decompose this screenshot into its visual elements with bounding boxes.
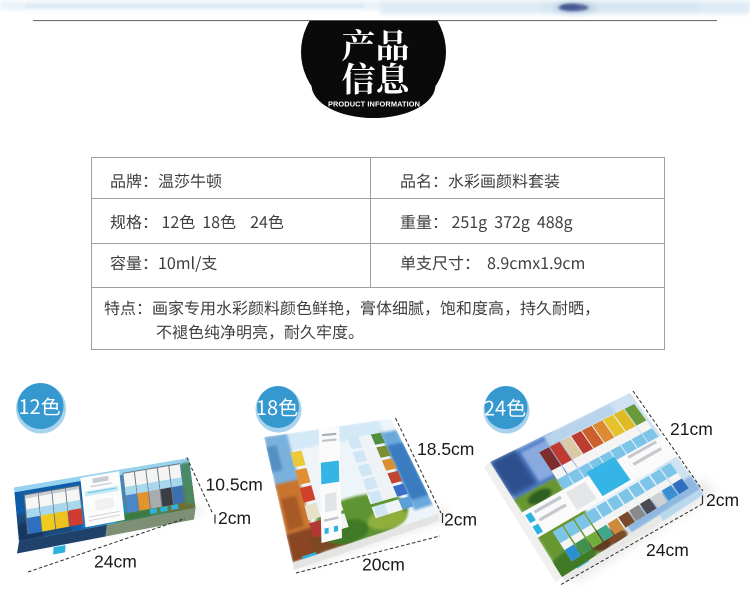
svg-text:10.5cm: 10.5cm [206,475,263,495]
svg-text:18.5cm: 18.5cm [417,439,474,459]
svg-text:20cm: 20cm [362,555,405,575]
svg-text:2cm: 2cm [218,508,251,528]
svg-text:2cm: 2cm [706,490,739,510]
svg-text:21cm: 21cm [670,419,713,439]
svg-text:24cm: 24cm [94,552,137,572]
svg-text:24cm: 24cm [646,540,689,560]
svg-text:PRODUCT INFORMATION: PRODUCT INFORMATION [328,100,420,109]
svg-text:2cm: 2cm [444,510,477,530]
